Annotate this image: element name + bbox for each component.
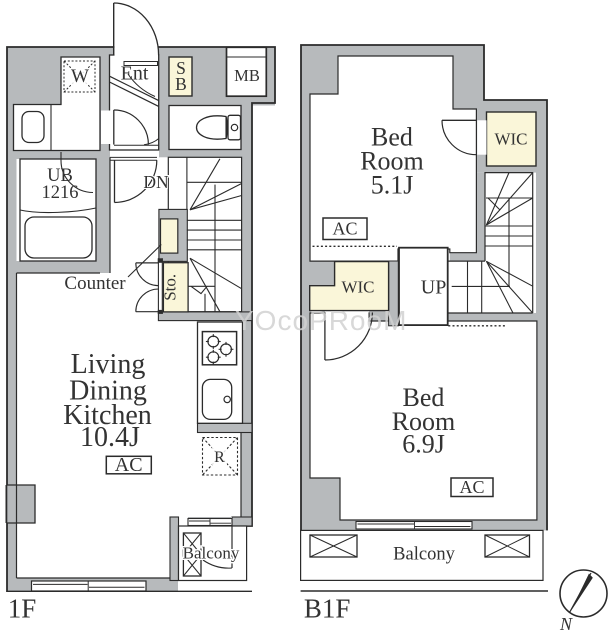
svg-text:Balcony: Balcony	[393, 545, 455, 565]
svg-text:MB: MB	[234, 66, 260, 85]
svg-text:N: N	[559, 614, 573, 634]
svg-text:Ent: Ent	[121, 63, 149, 85]
svg-text:AC: AC	[332, 219, 357, 239]
svg-text:6.9J: 6.9J	[402, 430, 445, 459]
svg-text:1216: 1216	[42, 183, 79, 203]
svg-text:WIC: WIC	[494, 130, 527, 149]
svg-text:1F: 1F	[8, 594, 37, 624]
svg-text:R: R	[214, 449, 225, 466]
svg-text:YOcoPRooM: YOcoPRooM	[235, 305, 407, 336]
svg-text:Sto.: Sto.	[161, 274, 180, 301]
svg-text:AC: AC	[459, 477, 484, 497]
svg-text:Balcony: Balcony	[183, 544, 240, 563]
svg-text:DN: DN	[143, 172, 169, 192]
svg-text:5.1J: 5.1J	[371, 171, 414, 200]
svg-text:W: W	[71, 66, 89, 87]
svg-text:10.4J: 10.4J	[80, 422, 140, 453]
svg-text:WIC: WIC	[341, 278, 374, 297]
svg-text:Counter: Counter	[64, 273, 126, 294]
svg-text:B1F: B1F	[304, 594, 351, 624]
svg-text:B: B	[175, 74, 187, 94]
svg-text:UP: UP	[421, 277, 447, 299]
svg-text:AC: AC	[115, 454, 143, 476]
